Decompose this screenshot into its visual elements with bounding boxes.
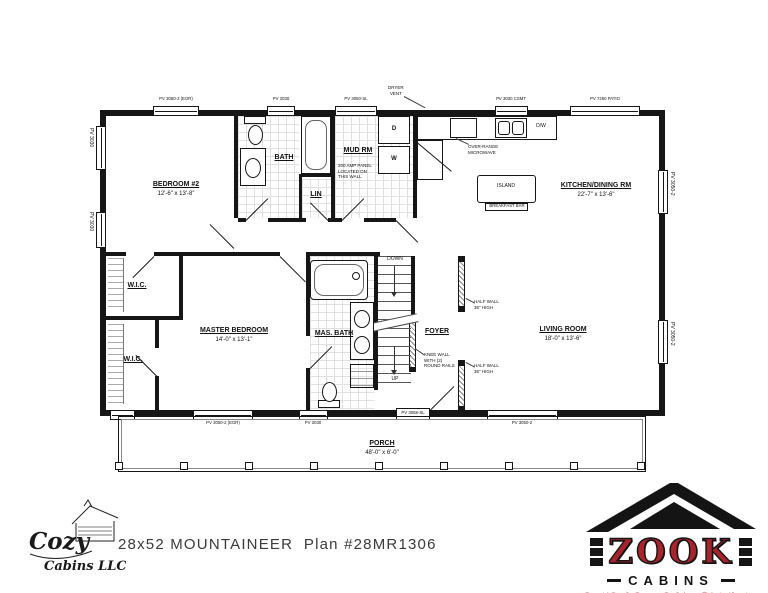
window-top-bedroom2 <box>153 106 199 116</box>
wall-linen-left <box>299 177 302 218</box>
door-top-mudroom <box>335 106 377 116</box>
window-label-right-lower: PV 3050-2 <box>669 322 675 346</box>
room-label-kitchen: KITCHEN/DINING RM <box>561 182 631 190</box>
wall-master-suite-top <box>106 252 126 256</box>
note-dryer-vent: DRYER VENT <box>388 85 404 96</box>
window-left-upper <box>96 126 106 170</box>
half-wall-cap <box>458 360 465 366</box>
shower-head <box>352 272 360 280</box>
room-label-living: LIVING ROOM <box>539 326 586 334</box>
wic-lower-hangers <box>108 324 123 404</box>
washer-label: W <box>391 156 397 163</box>
window-label-left-lower: PV 3030 <box>88 212 94 231</box>
sink-basin-left <box>498 121 510 135</box>
master-sink-1 <box>354 310 370 328</box>
room-label-master: MASTER BEDROOM <box>200 327 268 335</box>
note-half-wall-lower: HALF WALL 36" HIGH <box>474 363 499 374</box>
toilet-bowl-bath <box>248 125 263 145</box>
room-dims-kitchen: 22'-7" x 13'-6" <box>578 192 615 199</box>
wall-master-suite-top <box>154 252 280 256</box>
wall-tub-linen <box>299 174 334 177</box>
zook-cabins-row: CABINS <box>578 573 764 588</box>
porch-post <box>245 462 253 470</box>
stairs-up-arrow <box>394 346 395 370</box>
plan-title: 28x52 MOUNTAINEER Plan #28MR1306 <box>118 536 437 553</box>
island-label: ISLAND <box>497 184 515 190</box>
room-label-mudroom: MUD RM <box>344 147 373 155</box>
porch-post <box>505 462 513 470</box>
zook-cabins-text: CABINS <box>628 573 714 588</box>
note-knee-wall: KNEE WALL WITH (2) ROUND RAILS <box>424 352 455 369</box>
dash-left <box>607 579 621 582</box>
room-label-wic-lower: W.I.C. <box>123 356 142 364</box>
window-right-upper <box>658 170 668 214</box>
sink-basin-right <box>512 121 524 135</box>
toilet-tank-bath <box>244 116 266 124</box>
room-dims-bedroom2: 12'-6" x 13'-8" <box>158 191 195 198</box>
zook-wordmark-row: ZOOK <box>578 533 764 573</box>
zook-roof-icon <box>578 480 764 534</box>
dash-right <box>721 579 735 582</box>
half-wall-upper <box>458 256 465 312</box>
room-dims-porch: 48'-0" x 6'-0" <box>365 450 399 457</box>
door-label-top-mudroom: PV 3050-SL <box>344 97 367 102</box>
window-label-right-upper: PV 3050-2 <box>669 172 675 196</box>
stairs-down-label: DOWN <box>387 257 403 263</box>
zook-wordmark: ZOOK <box>578 533 764 571</box>
porch-post <box>570 462 578 470</box>
cozy-cabins-logo-art: Cozy Cabins LLC <box>26 496 126 584</box>
wall-hall-segment <box>268 218 306 222</box>
room-label-porch: PORCH <box>369 440 394 448</box>
wic-lower-rod <box>123 324 124 404</box>
leader-dryer-vent <box>404 96 426 108</box>
wall-hall-segment <box>328 218 342 222</box>
wic-upper-hangers <box>108 258 123 312</box>
note-half-wall-upper: HALF WALL 36" HIGH <box>474 299 499 310</box>
floor-plan-sheet: DOWN UP D W D/W ISLAND BREAKFAST BAR PV … <box>0 0 768 593</box>
porch-post <box>310 462 318 470</box>
range <box>450 118 477 138</box>
window-top-bath <box>267 106 295 116</box>
cozy-logo-line1: Cozy <box>29 528 91 555</box>
log-end-left <box>590 538 603 568</box>
half-wall-cap <box>458 256 465 262</box>
toilet-bowl-master <box>322 382 337 402</box>
zook-cabins-logo: ZOOK CABINS Certified Cozy Cabins Distri… <box>578 480 764 592</box>
patio-door <box>570 106 640 116</box>
dishwasher-label: D/W <box>536 124 546 130</box>
window-left-lower <box>96 212 106 248</box>
porch-post <box>637 462 645 470</box>
room-label-foyer: FOYER <box>425 328 449 336</box>
stairs-up-label: UP <box>392 377 399 383</box>
log-end-right <box>739 538 752 568</box>
dryer-label: D <box>392 126 396 133</box>
wall-bedroom2-bath <box>234 116 238 218</box>
note-microwave: OVER-RANGE MICROWAVE <box>468 144 498 155</box>
wall-wic-lower-right <box>155 320 159 348</box>
wic-upper-rod <box>123 258 124 312</box>
porch-post <box>180 462 188 470</box>
front-entry-door-label: PV 3068-SL <box>401 411 424 416</box>
wall-master-masterbath <box>306 368 310 410</box>
patio-door-label: PV 7260 PATIO <box>590 97 620 102</box>
half-wall-cap <box>458 306 465 312</box>
wall-hall-segment <box>364 218 396 222</box>
cozy-cabins-logo: Cozy Cabins LLC <box>26 496 126 584</box>
door-hall-kitchen <box>396 220 419 243</box>
master-sink-2 <box>354 336 370 354</box>
breakfast-bar-label: BREAKFAST BAR <box>489 204 524 209</box>
stairs-down-arrowhead <box>391 292 397 297</box>
cozy-logo-line2: Cabins LLC <box>44 559 126 574</box>
window-label-top-bedroom2: PV 3050-2 (EGR) <box>159 97 193 102</box>
room-label-wic-upper: W.I.C. <box>127 282 146 290</box>
window-top-kitchen <box>495 106 528 116</box>
door-master-bedroom <box>280 256 306 282</box>
wall-wic-lower-right <box>155 376 159 410</box>
porch-post <box>440 462 448 470</box>
porch-post <box>375 462 383 470</box>
wall-stairs-foyer <box>411 256 415 316</box>
note-panel: 200 AMP PANEL LOCATED ON THIS WALL <box>338 163 372 180</box>
stairs-up-arrowhead <box>391 370 397 375</box>
porch-post <box>115 462 123 470</box>
room-dims-living: 18'-0" x 13'-6" <box>545 336 582 343</box>
window-label-left-upper: PV 3030 <box>88 128 94 147</box>
room-label-bath: BATH <box>275 154 294 162</box>
window-right-lower <box>658 320 668 364</box>
half-wall-lower <box>458 360 465 412</box>
room-label-masterbath: MAS. BATH <box>315 330 353 338</box>
wall-wic-divider <box>106 316 183 320</box>
bathtub-inner <box>305 120 327 170</box>
wall-masterbath-top <box>306 252 380 256</box>
wall-bath-mudroom <box>331 116 335 218</box>
master-linen-shelves <box>350 364 374 388</box>
wall-wic-upper-right <box>179 256 183 316</box>
stairs-down-arrow <box>394 266 395 292</box>
room-dims-master: 14'-0" x 13'-1" <box>216 337 253 344</box>
door-wic-upper <box>132 256 154 278</box>
room-label-linen: LIN <box>310 191 321 199</box>
bath-sink <box>245 158 261 178</box>
door-bedroom2 <box>210 224 235 249</box>
door-front-entry <box>430 386 455 411</box>
room-label-bedroom2: BEDROOM #2 <box>153 181 199 189</box>
exterior-wall-right <box>659 110 665 416</box>
window-label-top-bath: PV 3030 <box>273 97 290 102</box>
leader-knee-wall <box>415 348 425 355</box>
window-label-top-kitchen: PV 3030 CSMT <box>496 97 526 102</box>
half-wall-cap <box>458 406 465 412</box>
master-shower-inner <box>314 264 364 296</box>
